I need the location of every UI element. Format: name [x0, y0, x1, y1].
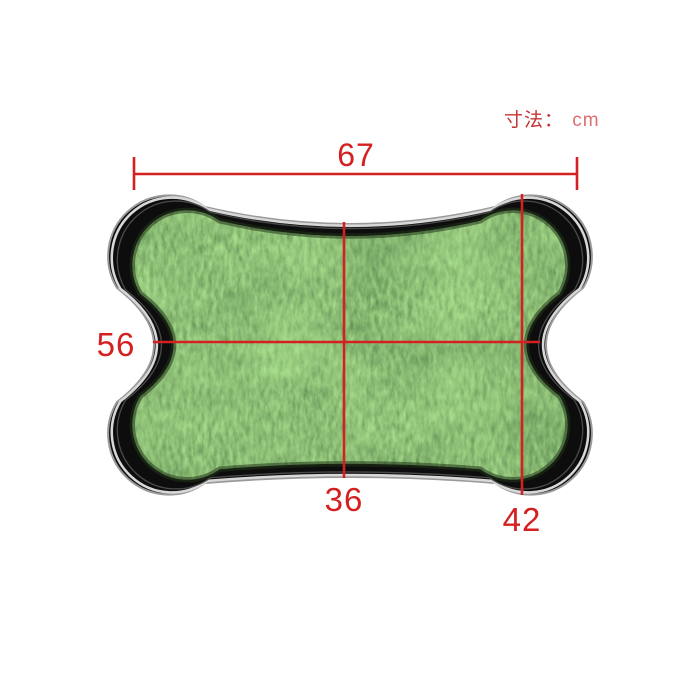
dim-end-height-label: 42 [503, 501, 542, 538]
size-unit-note: 寸法： cm [504, 109, 600, 131]
grass-texture [110, 195, 590, 495]
dim-overall-width-label: 67 [337, 137, 375, 173]
dim-inner-width-label: 56 [97, 326, 136, 363]
size-note-unit: cm [572, 110, 599, 131]
bone-tray [108, 195, 592, 495]
product-dimension-figure: 67 56 36 42 寸法： cm [0, 0, 700, 700]
dim-center-height-label: 36 [325, 481, 364, 518]
grass-surface [110, 195, 590, 495]
size-note-label: 寸法： [504, 109, 564, 131]
diagram-canvas: 67 56 36 42 寸法： cm [0, 0, 700, 700]
